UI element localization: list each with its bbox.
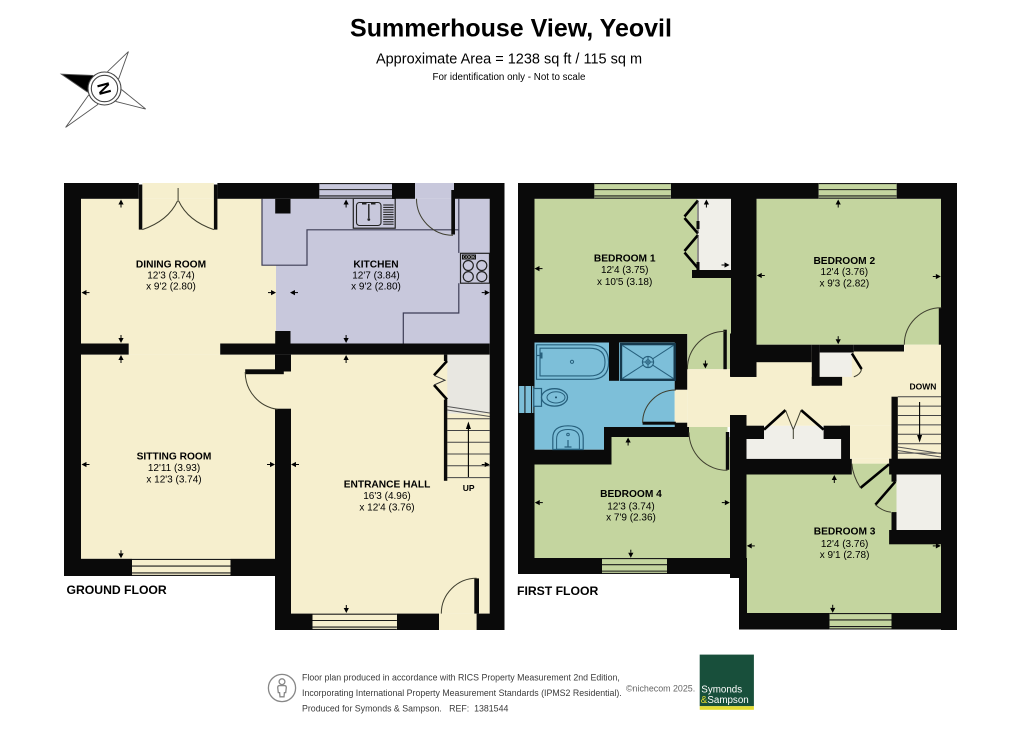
svg-text:BEDROOM 4: BEDROOM 4 [600, 489, 662, 500]
svg-text:Approximate Area = 1238 sq ft: Approximate Area = 1238 sq ft / 115 sq m [376, 52, 642, 68]
svg-text:SITTING ROOM: SITTING ROOM [137, 451, 212, 462]
svg-text:KITCHEN: KITCHEN [353, 259, 398, 270]
svg-text:FIRST FLOOR: FIRST FLOOR [517, 584, 598, 598]
svg-text:Summerhouse View, Yeovil: Summerhouse View, Yeovil [350, 15, 672, 43]
svg-text:BEDROOM 2: BEDROOM 2 [813, 256, 875, 267]
svg-text:12'3 (3.74): 12'3 (3.74) [147, 270, 195, 281]
svg-text:COOK: COOK [463, 255, 476, 260]
svg-text:DOWN: DOWN [910, 381, 937, 391]
svg-text:x 9'3 (2.82): x 9'3 (2.82) [819, 278, 869, 289]
svg-text:ENTRANCE HALL: ENTRANCE HALL [344, 480, 431, 491]
svg-text:GROUND FLOOR: GROUND FLOOR [67, 583, 167, 597]
svg-text:Produced for Symonds & Sampson: Produced for Symonds & Sampson. REF: 138… [302, 704, 508, 714]
svg-text:x 10'5 (3.18): x 10'5 (3.18) [597, 277, 652, 288]
svg-text:DINING ROOM: DINING ROOM [136, 259, 206, 270]
svg-text:BEDROOM 1: BEDROOM 1 [594, 254, 656, 265]
svg-text:12'7 (3.84): 12'7 (3.84) [352, 270, 400, 281]
svg-text:UP: UP [463, 483, 475, 493]
svg-text:x 7'9 (2.36): x 7'9 (2.36) [606, 513, 656, 524]
svg-text:12'3 (3.74): 12'3 (3.74) [607, 502, 655, 513]
svg-text:12'4 (3.76): 12'4 (3.76) [821, 539, 869, 550]
svg-text:12'4 (3.75): 12'4 (3.75) [601, 265, 649, 276]
svg-text:©nichecom 2025.: ©nichecom 2025. [626, 684, 695, 694]
svg-text:&Sampson: &Sampson [701, 695, 749, 706]
svg-text:16'3 (4.96): 16'3 (4.96) [363, 491, 411, 502]
svg-text:x 9'1 (2.78): x 9'1 (2.78) [820, 550, 870, 561]
svg-text:BEDROOM 3: BEDROOM 3 [814, 527, 876, 538]
svg-text:12'4 (3.76): 12'4 (3.76) [821, 267, 869, 278]
svg-text:Incorporating International Pr: Incorporating International Property Mea… [302, 688, 622, 698]
svg-text:x 9'2 (2.80): x 9'2 (2.80) [351, 282, 401, 293]
svg-text:12'11 (3.93): 12'11 (3.93) [148, 463, 200, 474]
svg-text:x 12'4 (3.76): x 12'4 (3.76) [359, 503, 414, 514]
svg-text:Floor plan produced in accorda: Floor plan produced in accordance with R… [302, 673, 620, 683]
svg-text:x 12'3 (3.74): x 12'3 (3.74) [146, 475, 201, 486]
svg-text:For identification only - Not: For identification only - Not to scale [432, 72, 586, 83]
svg-text:x 9'2 (2.80): x 9'2 (2.80) [146, 282, 196, 293]
